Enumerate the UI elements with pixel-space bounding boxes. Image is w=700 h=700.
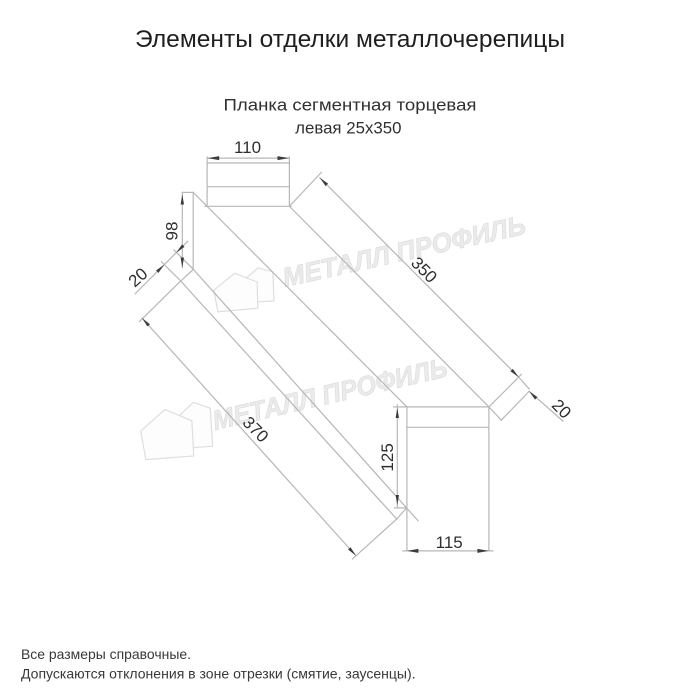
svg-text:125: 125 — [378, 443, 397, 471]
svg-text:110: 110 — [234, 138, 261, 157]
svg-text:Допускаются отклонения в зоне: Допускаются отклонения в зоне отрезки (с… — [21, 666, 416, 682]
svg-text:Элементы отделки металлочерепи: Элементы отделки металлочерепицы — [135, 26, 565, 53]
svg-text:левая 25х350: левая 25х350 — [295, 119, 401, 138]
svg-text:115: 115 — [436, 533, 463, 552]
svg-text:Планка сегментная торцевая: Планка сегментная торцевая — [224, 96, 477, 115]
svg-text:Все размеры справочные.: Все размеры справочные. — [21, 646, 191, 662]
svg-text:98: 98 — [163, 222, 182, 241]
